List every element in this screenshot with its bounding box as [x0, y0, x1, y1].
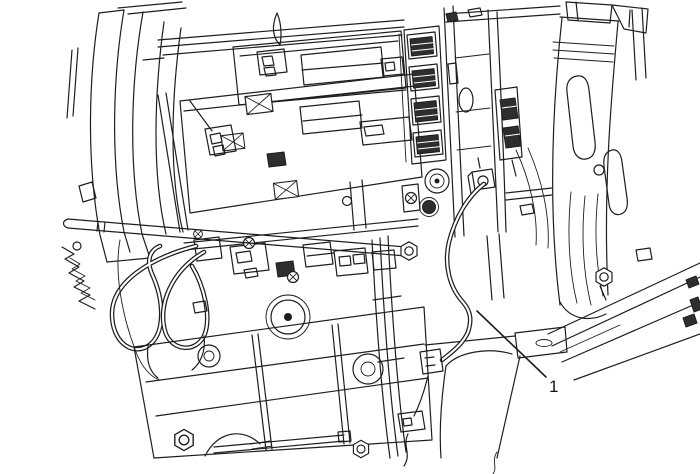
center-connector-panel	[158, 74, 422, 232]
boot-zigzag	[62, 247, 95, 309]
relay-module	[495, 87, 522, 176]
antenna-cable-loops	[112, 240, 207, 380]
console-silhouette	[425, 327, 567, 474]
callout-1-label: 1	[549, 377, 558, 396]
left-pillar-trim	[67, 2, 186, 262]
right-diagonal-brace	[553, 2, 628, 318]
service-illustration: 1	[0, 0, 700, 474]
bcm-connector-stack	[399, 26, 446, 164]
center-frame-member	[444, 6, 506, 300]
figure-canvas: 1	[0, 0, 700, 474]
callout-1-leader-line	[477, 311, 546, 377]
wiring-harness	[398, 158, 495, 466]
